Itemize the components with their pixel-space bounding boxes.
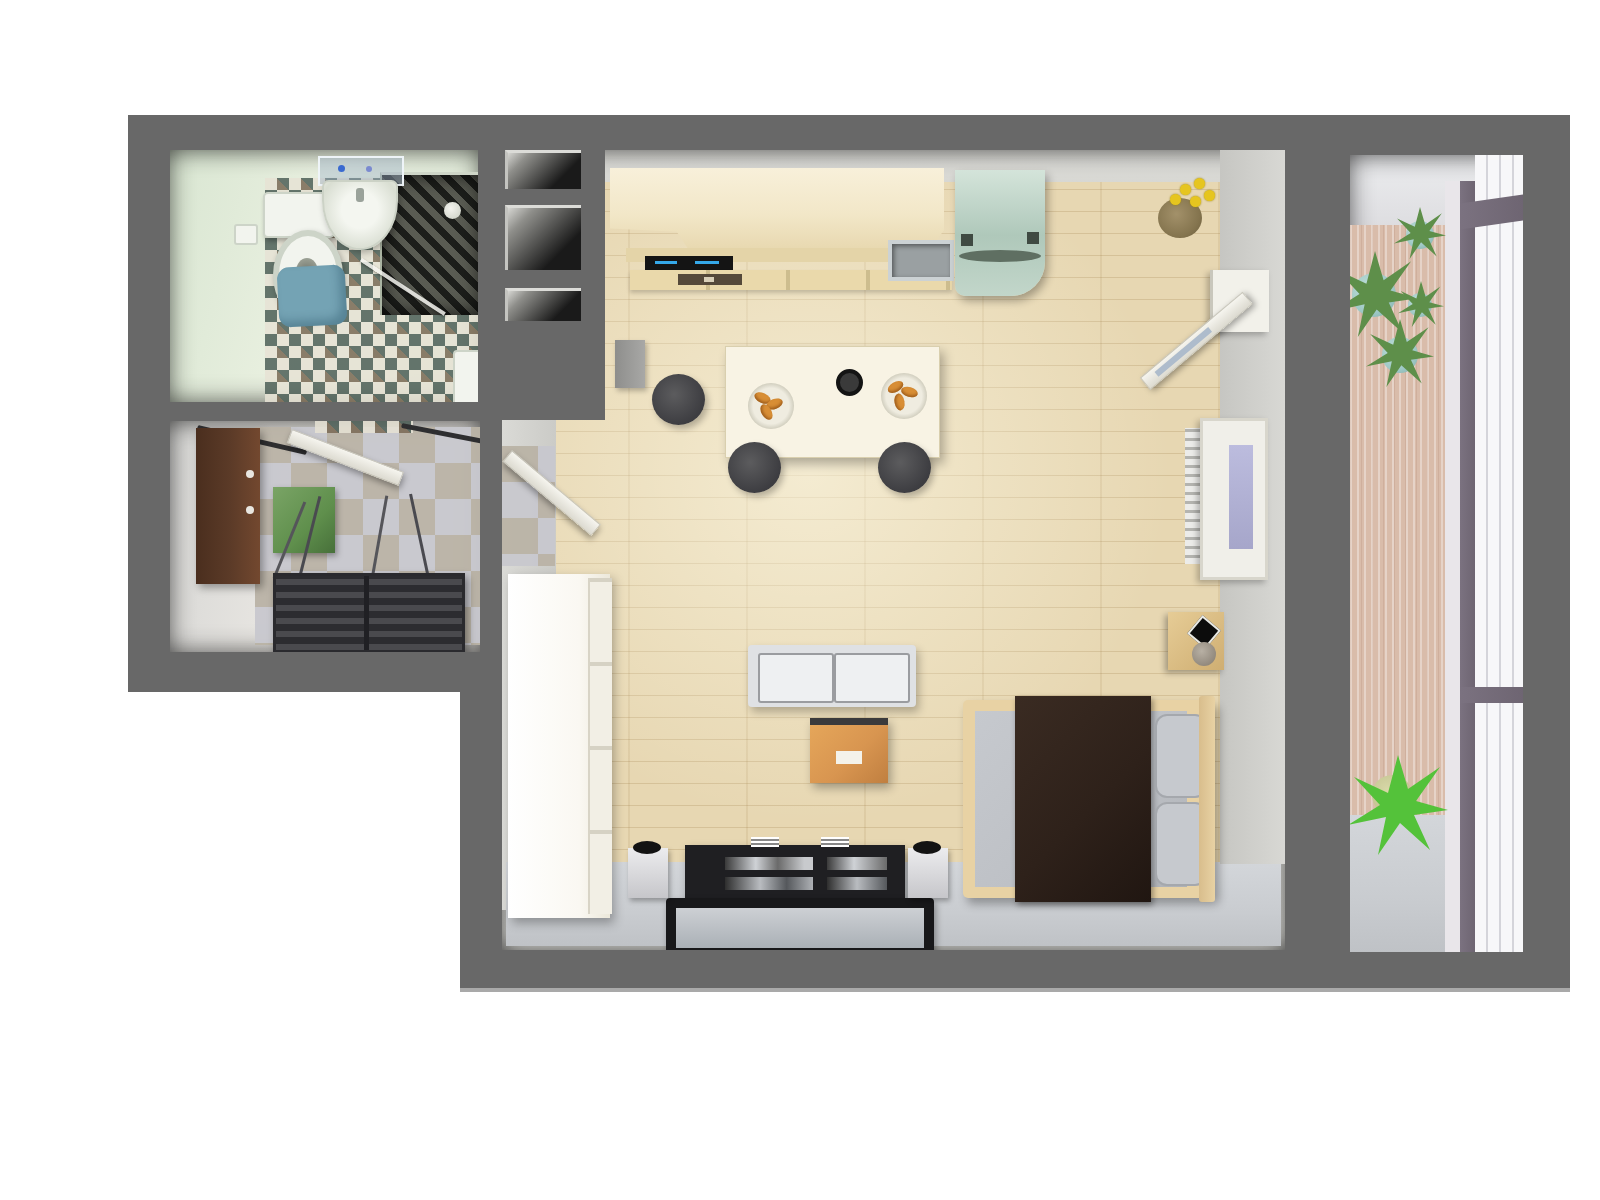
cooktop-indicator [655, 261, 677, 264]
storage-niche [505, 288, 581, 321]
glass-shelf-slot [725, 857, 813, 870]
bathroom-floor-through-doorway [315, 421, 413, 433]
sofa-cushion [834, 653, 910, 703]
living-room [502, 150, 1285, 950]
speaker-on-stand [908, 848, 948, 898]
facade-white-frame [1445, 181, 1460, 952]
potted-plant [1408, 293, 1432, 317]
refrigerator [955, 170, 1045, 296]
toiletry-bottle-icon [338, 165, 345, 172]
bed [963, 700, 1215, 898]
cooktop-indicator [695, 261, 719, 264]
shower-tray-corner [453, 350, 480, 402]
stool [652, 374, 705, 425]
potted-plant [1406, 221, 1434, 249]
tall-white-wardrobe [508, 574, 610, 918]
plate-with-croissants [748, 383, 794, 429]
stool [728, 442, 781, 493]
vent-grille-icon [678, 274, 742, 285]
card-on-table [836, 751, 862, 764]
bracket-icon [821, 837, 849, 847]
facade-glazing [1475, 155, 1523, 952]
sofa [748, 645, 916, 707]
window-right-wall [1200, 418, 1268, 580]
glass-shelf-slot [827, 877, 887, 890]
hallway [170, 421, 480, 652]
bench-divider [364, 576, 369, 650]
shoe-bench [273, 573, 465, 652]
bath-mat [276, 264, 347, 327]
glass-shelf-slot [827, 857, 887, 870]
flower-pot [1158, 198, 1202, 238]
potted-plant [1352, 273, 1396, 317]
sofa-cushion [758, 653, 834, 703]
floorplan-render [0, 0, 1600, 1200]
stool [878, 442, 931, 493]
floor-plant-pot [1372, 775, 1412, 815]
storage-shaft-wall-block [478, 115, 605, 420]
faucet-icon [356, 188, 364, 202]
hall-wardrobe [196, 428, 260, 584]
fridge-hinge-icon [1027, 232, 1039, 244]
plate-with-croissants [881, 373, 927, 419]
kitchen-sink [888, 240, 954, 281]
wardrobe-panel-doors [588, 578, 612, 914]
bracket-icon [751, 837, 779, 847]
speaker-on-stand [628, 848, 668, 898]
cup [836, 369, 863, 396]
fridge-handle [959, 250, 1041, 262]
tv-console [685, 845, 905, 900]
wall-intercom [1168, 612, 1224, 670]
wardrobe-knob-icon [246, 470, 254, 478]
bathroom [170, 150, 480, 402]
toilet-paper-holder [234, 224, 258, 245]
blanket [1015, 696, 1151, 902]
storage-niche [505, 205, 581, 270]
potted-plant [1382, 337, 1418, 373]
fridge-hinge-icon [961, 234, 973, 246]
toiletry-bottle-icon [366, 166, 372, 172]
wardrobe-knob-icon [246, 506, 254, 514]
intercom-knob-icon [1192, 642, 1216, 666]
facade-mullion [1460, 181, 1475, 952]
shower-head-icon [444, 202, 461, 219]
waste-bin [615, 340, 645, 388]
storage-niche [505, 150, 581, 189]
glass-shelf-slot [725, 877, 813, 890]
coffee-table [810, 718, 888, 783]
green-rug [273, 487, 335, 553]
facade-mid-bar [1460, 687, 1523, 703]
headboard [1199, 696, 1215, 902]
balcony [1350, 155, 1523, 952]
tv-frame-flat [666, 898, 934, 950]
window-pane [1229, 445, 1253, 549]
cooktop [645, 256, 733, 270]
